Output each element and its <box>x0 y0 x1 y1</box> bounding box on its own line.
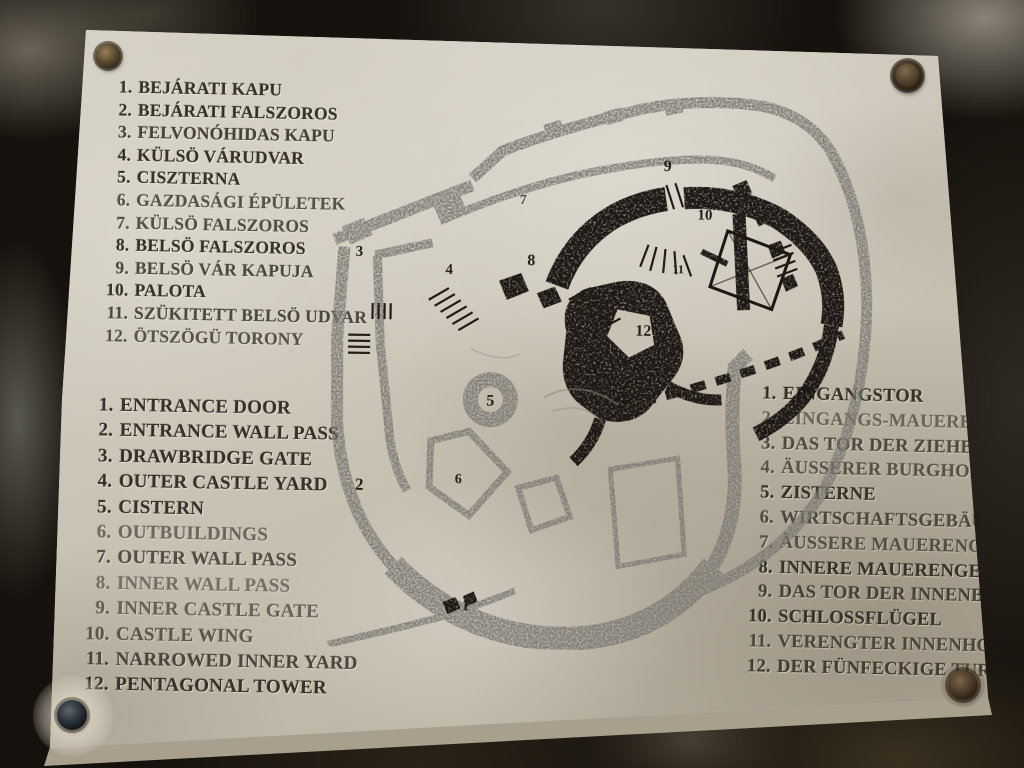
mounting-bolt-top-right <box>892 60 923 91</box>
map-label-8: 8 <box>527 252 535 269</box>
mounting-bolt-bottom-left <box>57 700 87 730</box>
map-label-10: 10 <box>697 207 712 223</box>
map-label-3: 3 <box>356 244 364 260</box>
castle-floor-plan-map: 1 2 3 4 5 6 7 8 9 10 11 12 <box>296 56 884 654</box>
map-label-12: 12 <box>635 323 651 340</box>
castle-map-plaque: 1.BEJÁRATI KAPU2.BEJÁRATI FALSZOROS3.FEL… <box>0 0 1024 768</box>
map-label-4: 4 <box>445 262 453 278</box>
legend-item: 11.NARROWED INNER YARD <box>69 646 358 676</box>
legend-item: 12.DER FÜNFECKIGE TURM <box>732 654 1024 685</box>
map-label-6: 6 <box>455 472 462 487</box>
map-label-11: 11 <box>672 262 684 276</box>
map-label-5: 5 <box>486 393 494 410</box>
map-label-7: 7 <box>520 193 527 208</box>
map-label-2: 2 <box>355 475 364 494</box>
map-label-1: 1 <box>462 598 470 614</box>
castle-plaque-photo: 1.BEJÁRATI KAPU2.BEJÁRATI FALSZOROS3.FEL… <box>0 0 1024 768</box>
legend-item: 12.PENTAGONAL TOWER <box>69 671 358 701</box>
map-label-9: 9 <box>664 158 672 175</box>
mounting-bolt-top-left <box>95 43 121 69</box>
mounting-bolt-bottom-right <box>948 670 978 700</box>
